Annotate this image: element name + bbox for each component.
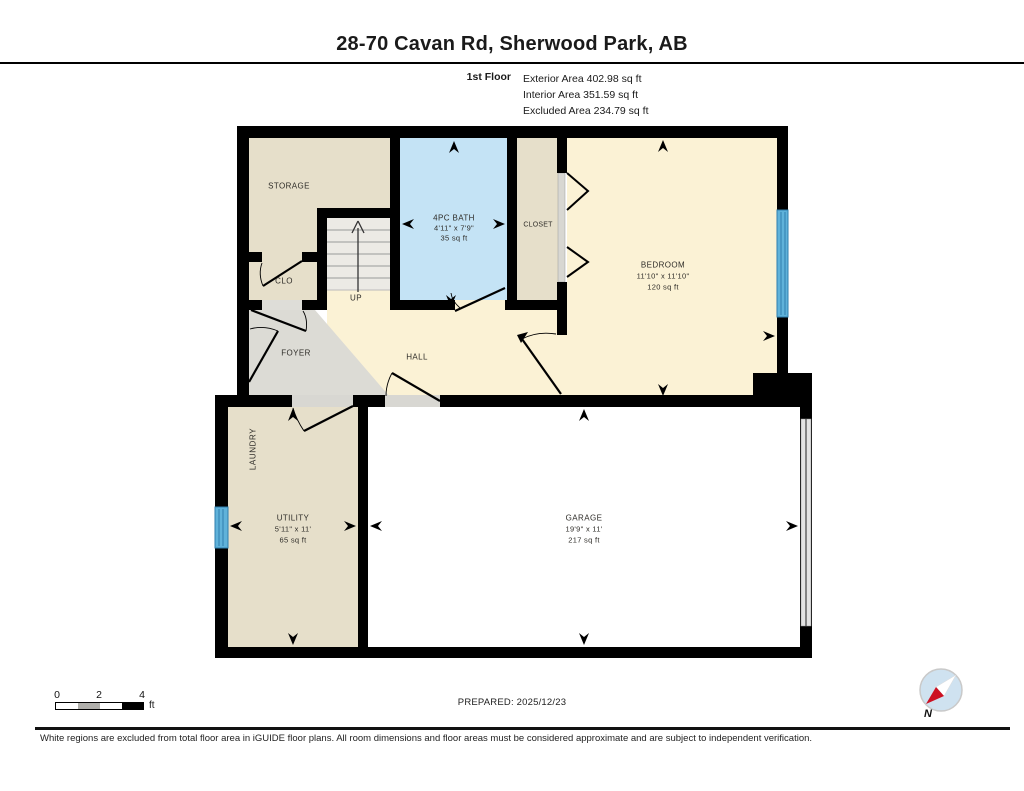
bedroom-area: 120 sq ft (647, 283, 678, 292)
footer-divider (35, 727, 1010, 730)
disclaimer-text: White regions are excluded from total fl… (40, 733, 812, 744)
utility-window (215, 507, 228, 548)
bedroom-window (777, 210, 788, 317)
floorplan-graphic (0, 0, 1024, 791)
bedroom-label: BEDROOM (641, 261, 685, 270)
closet-door-panel (558, 173, 565, 282)
closet-room (517, 138, 558, 300)
closet-label: CLOSET (523, 222, 552, 229)
bath-area: 35 sq ft (441, 234, 468, 243)
foyer-label: FOYER (281, 349, 311, 358)
overhead-garage-door (801, 419, 811, 626)
stairs-up-label: UP (350, 294, 362, 303)
laundry-label: LAUNDRY (249, 428, 258, 470)
laundry-doorway (292, 395, 353, 407)
clo-label: CLO (275, 277, 293, 286)
hall-label: HALL (406, 353, 428, 362)
storage-label: STORAGE (268, 182, 310, 191)
utility-dims: 5'11" x 11' (275, 525, 312, 534)
bath-dims: 4'11" x 7'9" (434, 224, 474, 233)
bath-label: 4PC BATH (433, 214, 475, 223)
utility-label: UTILITY (277, 514, 310, 523)
bedroom-dims: 11'10" x 11'10" (637, 272, 690, 281)
garage-area: 217 sq ft (568, 536, 599, 545)
garage-dims: 19'9" x 11' (565, 525, 602, 534)
garage-label: GARAGE (566, 514, 603, 523)
prepared-date: PREPARED: 2025/12/23 (0, 697, 1024, 708)
utility-area: 65 sq ft (280, 536, 307, 545)
floorplan-page: 28-70 Cavan Rd, Sherwood Park, AB 1st Fl… (0, 0, 1024, 791)
compass-north-label: N (924, 708, 932, 720)
